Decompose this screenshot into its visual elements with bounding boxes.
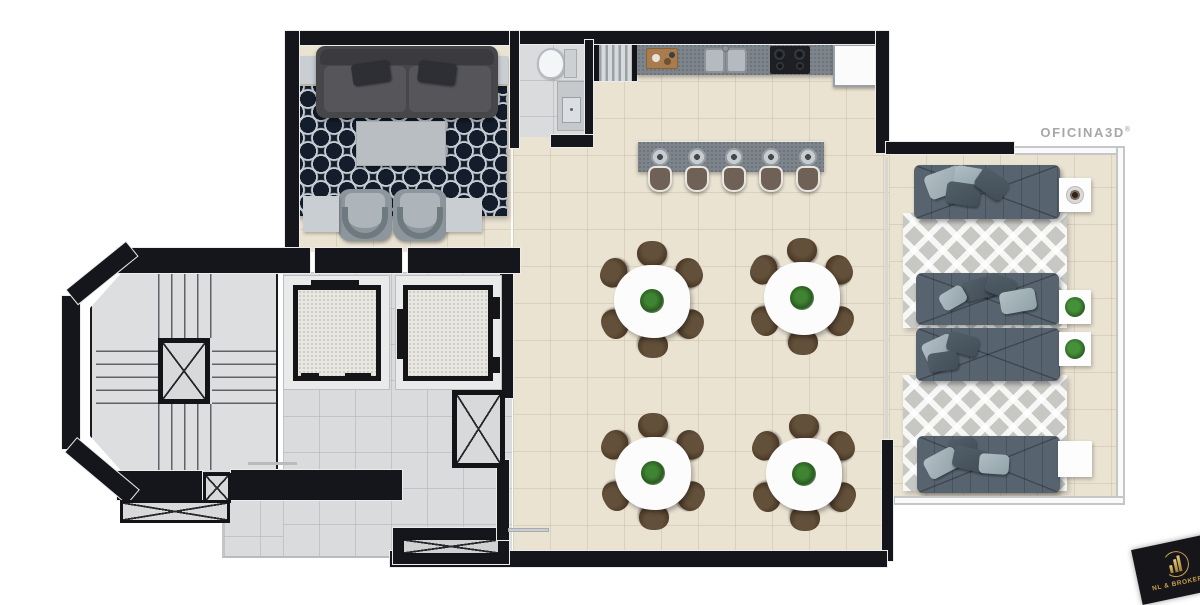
food-item: [664, 58, 671, 65]
sink-vanity: [557, 81, 585, 131]
buildings-icon: [1161, 549, 1192, 580]
wall-core-bottom-b: [231, 470, 402, 500]
dining-chair: [789, 414, 819, 440]
wall-main-right: [876, 31, 889, 153]
service-shaft-long: [120, 500, 230, 523]
elevator-door: [397, 309, 406, 359]
bar-stool: [722, 166, 746, 192]
kitchen-sink: [726, 48, 747, 73]
bar-stool: [796, 166, 820, 192]
service-shaft: [203, 473, 231, 503]
refrigerator: [833, 44, 878, 87]
bar-stool: [759, 166, 783, 192]
kitchen-sink: [704, 48, 725, 73]
faucet: [722, 45, 729, 52]
place-setting: [725, 148, 743, 166]
sink-drain: [570, 108, 573, 111]
coffee-table: [356, 121, 446, 166]
elevator-sill: [492, 357, 500, 373]
elevator-cab: [283, 275, 390, 390]
dining-chair: [787, 238, 817, 264]
air-vent-grille: [594, 44, 637, 81]
terrace-railing-right: [1116, 146, 1125, 505]
dining-set: [747, 244, 857, 354]
daybed: [917, 436, 1060, 493]
sofa-backrest: [320, 49, 494, 65]
stair-void-shaft: [158, 338, 210, 404]
glass-door-track: [885, 157, 888, 438]
corridor-floor-lower: [222, 500, 283, 558]
plant-centerpiece: [640, 289, 664, 313]
plant-centerpiece: [790, 286, 814, 310]
armchair-backrest: [397, 207, 443, 239]
stair-flight-down: [158, 404, 212, 470]
bar-stool: [648, 166, 672, 192]
brand-logo: NL & BROKERS: [1131, 533, 1200, 605]
wall-bath-bottom: [551, 135, 593, 147]
pillow: [998, 287, 1037, 315]
elevator-door: [311, 280, 359, 289]
elevator-sill: [301, 373, 319, 379]
wall-living-top: [285, 31, 515, 45]
cutting-board: [646, 48, 678, 69]
vent-shaft-strip: [402, 538, 500, 555]
wall-bottom-right: [882, 440, 893, 561]
handrail-line: [248, 462, 297, 465]
wall-bath-right: [585, 40, 593, 137]
cooktop: [770, 46, 810, 74]
elevator-floor: [403, 285, 493, 381]
daybed: [914, 165, 1060, 219]
toilet-tank: [564, 49, 577, 78]
lounge-side-table: [1059, 290, 1091, 324]
wall-core-top-c: [408, 248, 520, 273]
toilet: [537, 48, 565, 79]
lounge-side-table: [1059, 332, 1091, 366]
wall-core-top-a: [117, 248, 310, 273]
place-setting: [762, 148, 780, 166]
armchair: [338, 189, 392, 241]
plant-centerpiece: [792, 462, 816, 486]
sofa: [316, 46, 498, 118]
watermark: OFICINA3D®: [1040, 125, 1130, 140]
side-table: [303, 196, 339, 232]
bar-stool: [685, 166, 709, 192]
floorplan-canvas: { "watermark": { "text": "OFICINA3D", "r…: [0, 0, 1200, 600]
door-threshold: [508, 528, 549, 532]
dining-chair: [638, 413, 668, 439]
dining-set: [597, 247, 707, 357]
terrace-railing-top: [1012, 146, 1125, 155]
wall-bath-left: [510, 31, 519, 148]
wall-living-left: [285, 31, 299, 252]
food-item: [652, 54, 660, 62]
lounge-side-table: [1058, 441, 1092, 477]
stair-flight-left: [96, 340, 158, 404]
potted-plant: [1065, 339, 1085, 359]
armchair-backrest: [342, 207, 388, 239]
wall-core-left: [62, 296, 80, 449]
place-setting: [688, 148, 706, 166]
plant-centerpiece: [641, 461, 665, 485]
side-table: [446, 198, 482, 232]
wall-top-main: [510, 31, 889, 44]
elevator-sill: [345, 373, 371, 379]
burner: [794, 49, 805, 60]
pillow: [978, 453, 1009, 475]
wall-terrace-top: [886, 142, 1014, 154]
terrace-railing-bottom: [893, 496, 1125, 505]
place-setting: [651, 148, 669, 166]
daybed: [916, 273, 1059, 325]
dining-chair: [637, 241, 667, 267]
throw-pillow: [417, 60, 457, 86]
elevator-sill: [492, 297, 500, 319]
stair-flight-right: [212, 340, 276, 404]
place-setting: [799, 148, 817, 166]
food-item: [669, 52, 675, 58]
lounge-side-table: [1059, 178, 1091, 212]
elevator-cab: [395, 275, 502, 390]
coffee-tray: [1066, 186, 1084, 204]
buildings-icon-bars: [1167, 555, 1182, 573]
armchair: [393, 189, 447, 241]
wall-core-top-b: [315, 248, 402, 273]
dining-set: [598, 419, 708, 529]
daybed: [916, 328, 1060, 381]
burner: [776, 62, 784, 70]
watermark-text: OFICINA3D: [1040, 125, 1124, 140]
burner: [774, 49, 785, 60]
potted-plant: [1065, 297, 1085, 317]
stair-flight-up: [158, 274, 212, 338]
burner: [796, 62, 804, 70]
elevator-floor: [293, 285, 381, 381]
pillow: [927, 350, 959, 373]
service-shaft-right: [452, 390, 505, 468]
dining-set: [749, 420, 859, 530]
registered-mark: ®: [1125, 127, 1130, 134]
